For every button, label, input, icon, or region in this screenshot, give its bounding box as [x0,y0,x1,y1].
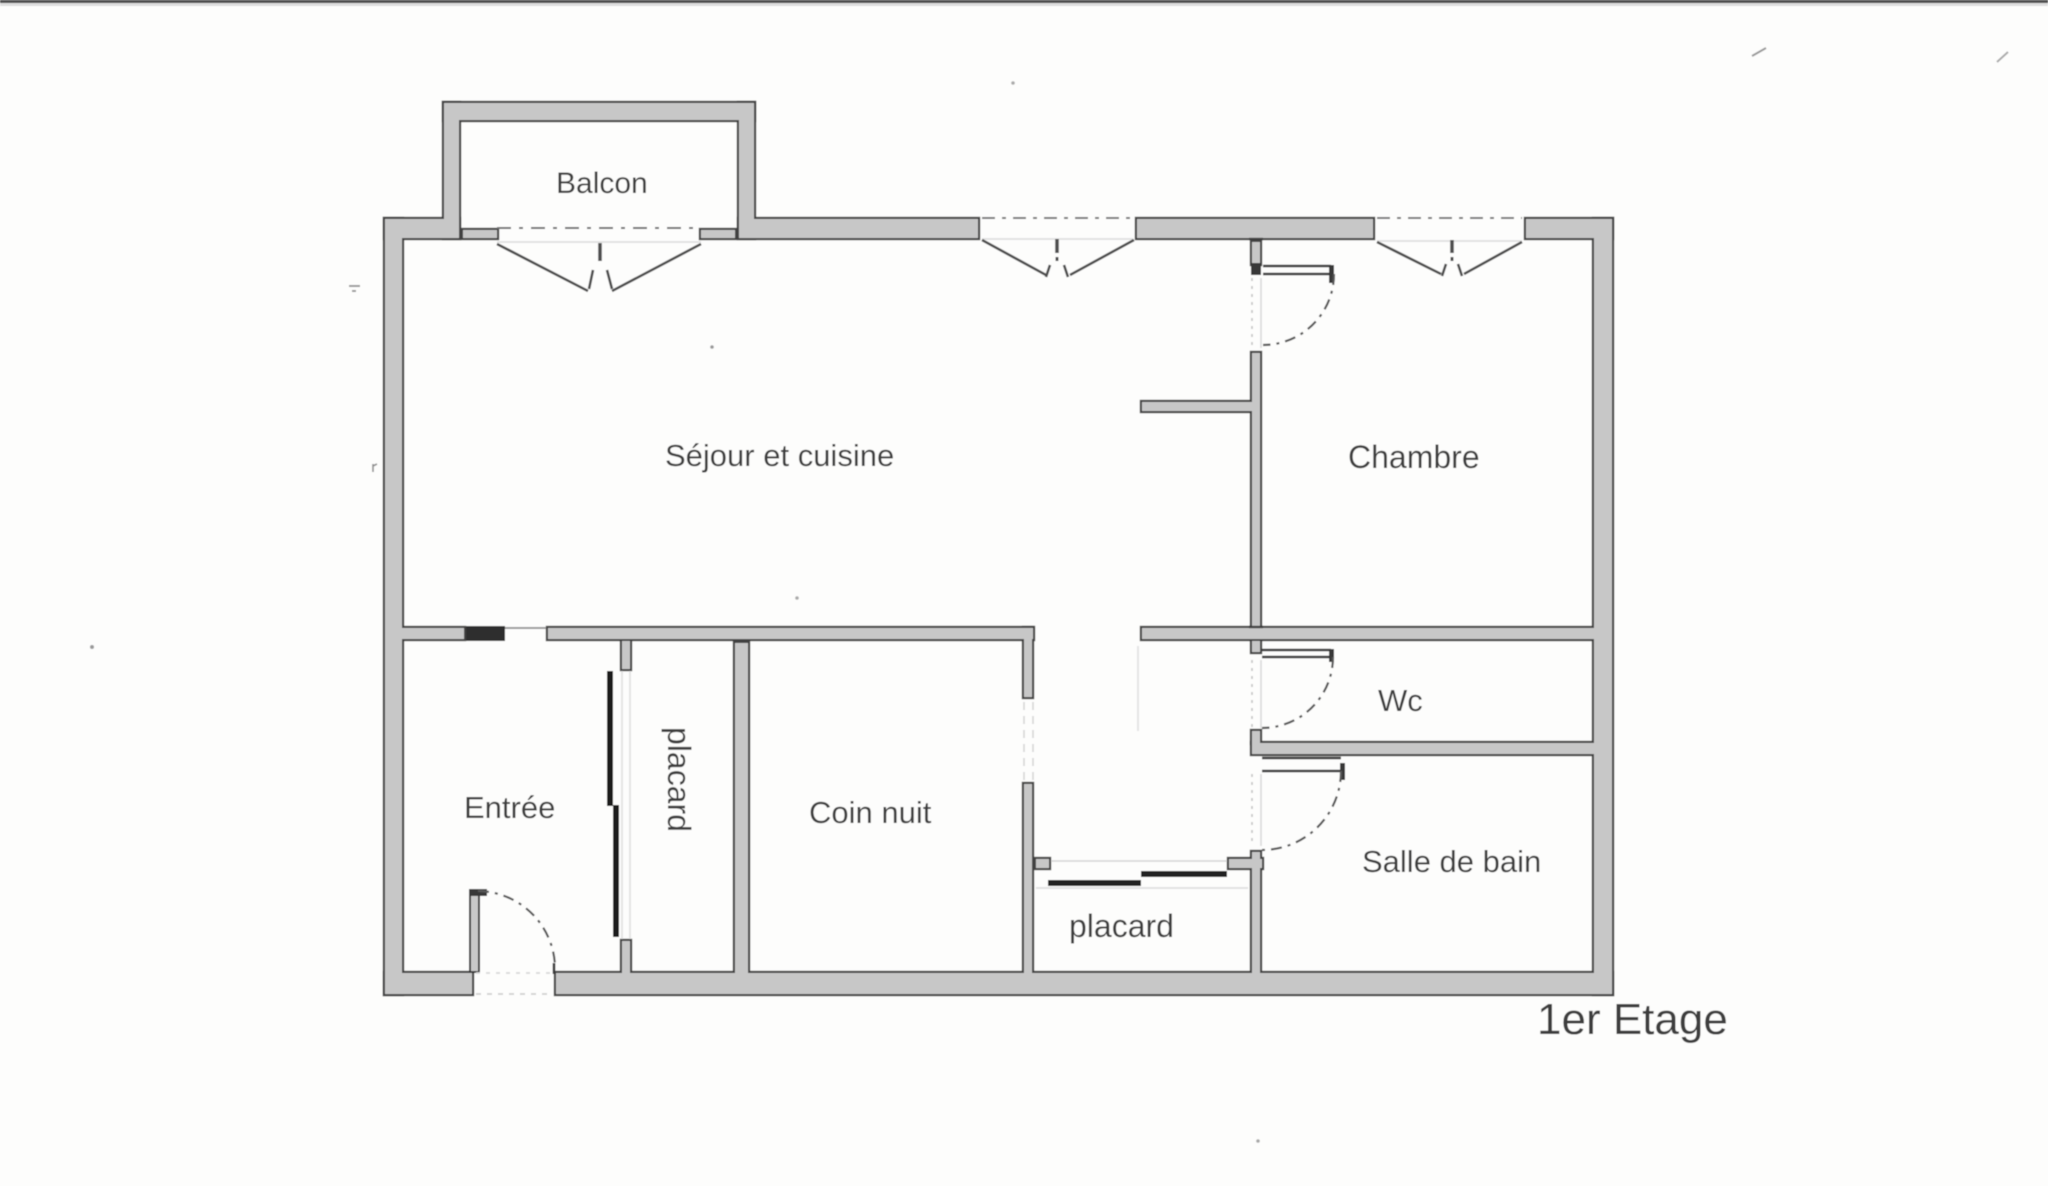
svg-text:Balcon: Balcon [556,167,648,200]
svg-text:Salle de bain: Salle de bain [1362,844,1541,879]
svg-text:Chambre: Chambre [1348,439,1480,475]
svg-text:Séjour et cuisine: Séjour et cuisine [665,438,894,473]
svg-text:Entrée: Entrée [464,790,555,825]
svg-text:placard: placard [1069,908,1174,944]
svg-text:placard: placard [661,727,697,832]
svg-text:Coin nuit: Coin nuit [809,795,932,830]
svg-text:1er Etage: 1er Etage [1537,995,1728,1044]
svg-text:Wc: Wc [1378,683,1423,718]
